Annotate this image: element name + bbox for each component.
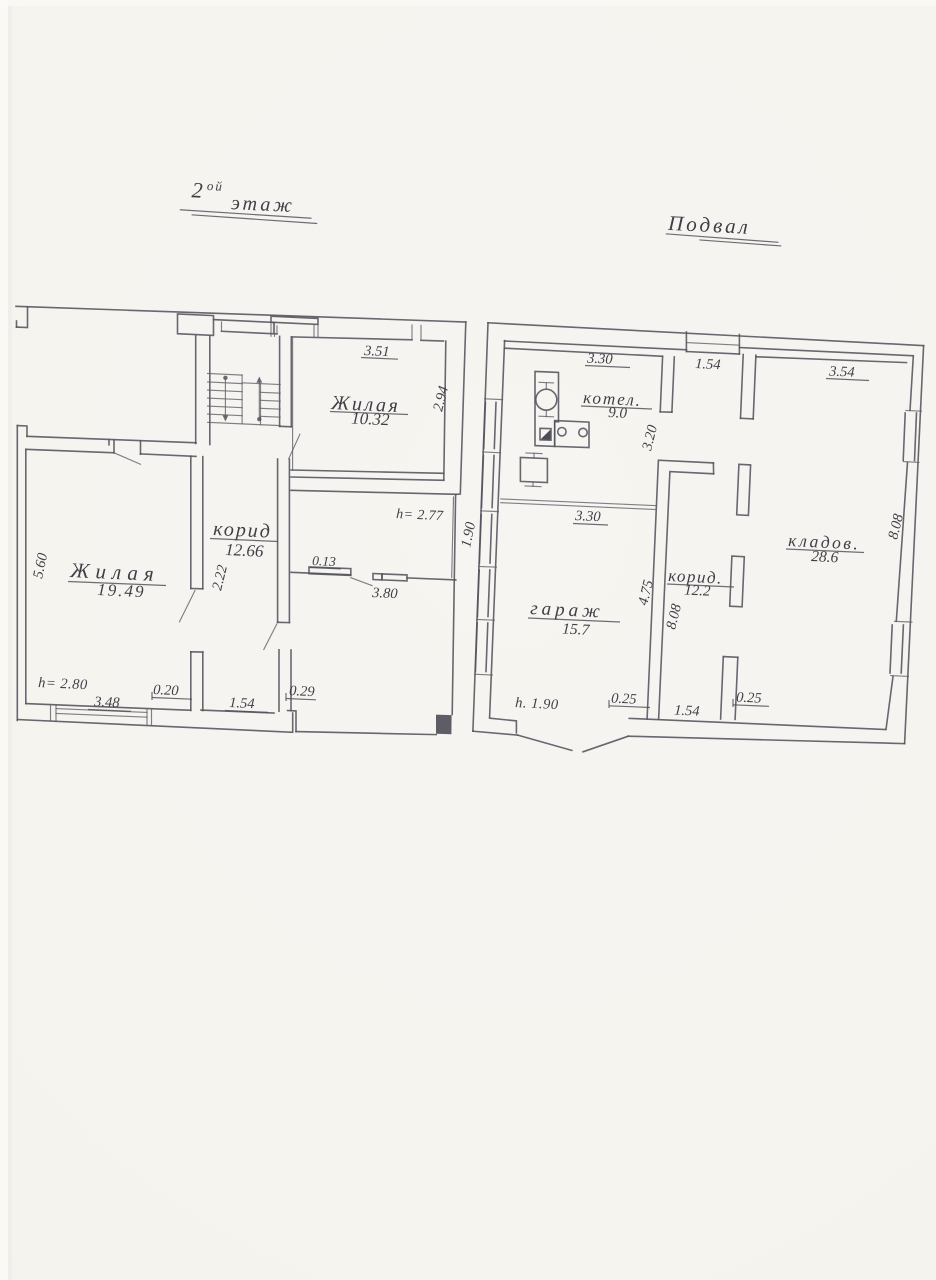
svg-text:ой: ой [207,178,225,194]
svg-text:h= 2.77: h= 2.77 [396,507,444,524]
svg-text:5.60: 5.60 [30,551,51,580]
svg-text:0.25: 0.25 [611,691,637,708]
svg-text:3.54: 3.54 [828,363,855,380]
svg-text:4.75: 4.75 [635,578,657,606]
svg-text:1.54: 1.54 [674,703,700,720]
svg-text:0.25: 0.25 [736,690,762,707]
svg-text:12.66: 12.66 [225,540,265,561]
svg-text:3.20: 3.20 [639,423,661,453]
svg-text:3.30: 3.30 [574,508,602,525]
svg-text:15.7: 15.7 [562,621,591,639]
svg-text:2.22: 2.22 [209,563,231,591]
svg-text:3.48: 3.48 [93,694,121,711]
svg-text:28.6: 28.6 [811,548,839,566]
svg-text:10.32: 10.32 [351,409,391,430]
svg-text:8.08: 8.08 [885,512,907,541]
svg-text:1.54: 1.54 [229,695,255,712]
svg-text:h. 1.90: h. 1.90 [515,695,559,713]
svg-text:1.54: 1.54 [695,356,721,373]
svg-text:2: 2 [191,177,203,202]
svg-text:1.90: 1.90 [458,520,479,549]
svg-text:9.0: 9.0 [608,405,628,422]
svg-text:3.80: 3.80 [371,585,399,602]
svg-text:2.94: 2.94 [430,384,452,412]
svg-text:h= 2.80: h= 2.80 [38,675,88,693]
svg-text:19.49: 19.49 [97,580,146,601]
svg-text:0.29: 0.29 [289,683,316,700]
svg-text:0.13: 0.13 [312,553,337,569]
svg-text:12.2: 12.2 [684,583,711,600]
svg-text:8.08: 8.08 [663,602,685,631]
svg-text:0.20: 0.20 [153,682,180,699]
